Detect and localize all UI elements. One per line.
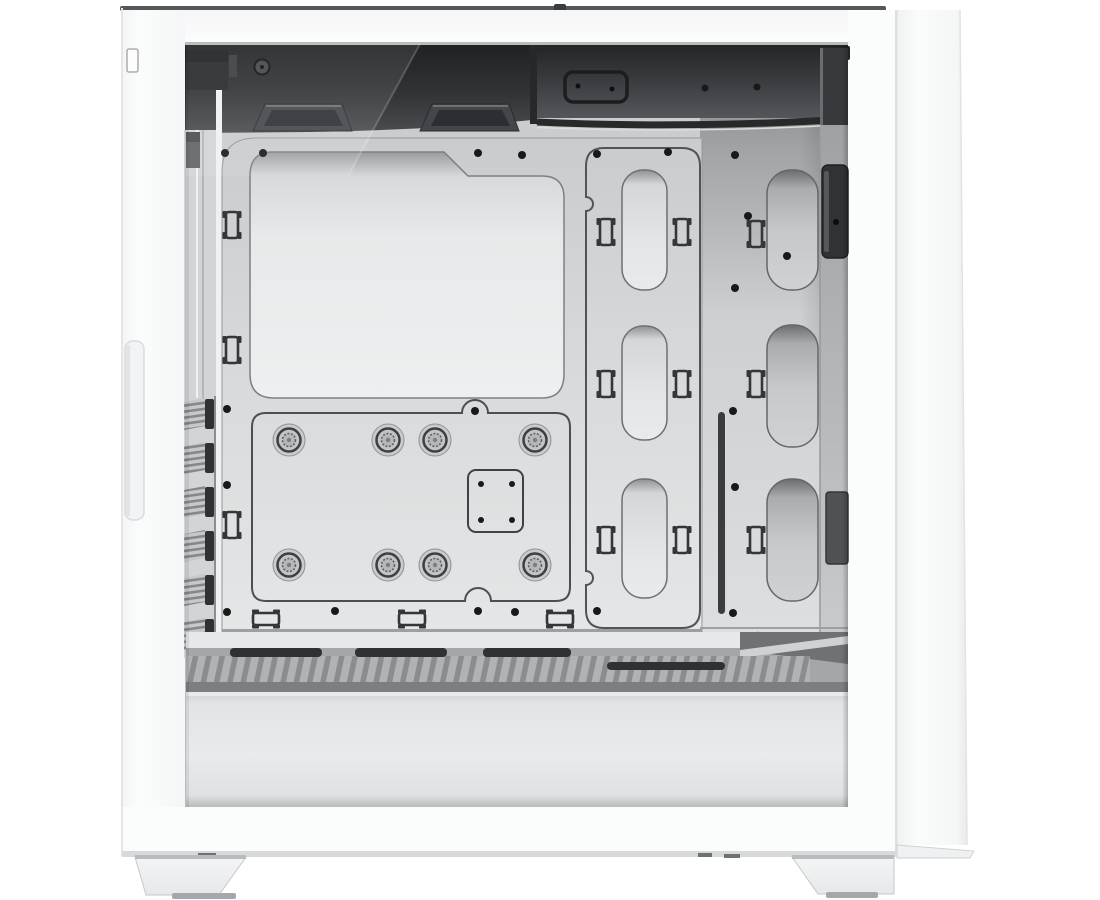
shroud-shadow-band <box>186 682 848 692</box>
fan-mount-pad <box>420 104 519 131</box>
rear-cable-cutout-middle <box>767 325 818 447</box>
photo-stage <box>0 0 1100 900</box>
rear-seam <box>895 10 898 857</box>
rear-cable-cutout-bottom <box>767 479 818 601</box>
motherboard-standoff <box>519 424 551 456</box>
motherboard-standoff <box>419 549 451 581</box>
top-frame <box>122 10 897 44</box>
psu-shroud <box>186 629 848 807</box>
motherboard-standoff <box>419 424 451 456</box>
rear-frame-column <box>848 10 897 856</box>
rear-cable-cutout-top <box>767 170 818 290</box>
vent-divider-line <box>214 396 216 658</box>
motherboard-standoff <box>273 549 305 581</box>
front-grip-shadow <box>126 345 130 516</box>
motherboard-tray <box>222 138 702 632</box>
shroud-front-panel <box>186 692 848 807</box>
top-rail-step <box>530 44 537 124</box>
tray-fold-line <box>222 629 702 632</box>
bottom-frame <box>122 807 897 856</box>
rail-clip-mark <box>724 854 740 858</box>
motherboard-standoff <box>372 424 404 456</box>
motherboard-standoff <box>273 424 305 456</box>
front-edge-line <box>121 8 123 856</box>
top-shadow-right <box>537 44 848 118</box>
cable-cutout-bottom <box>622 479 667 598</box>
foot-front-pad <box>172 893 236 899</box>
rear-panel-face <box>897 10 967 845</box>
panel-latch-tab <box>127 49 138 72</box>
rail-clip-mark <box>698 853 712 857</box>
foot-front-top <box>135 855 246 859</box>
gpu-antisag-slot <box>718 412 727 614</box>
case-interior <box>184 42 850 807</box>
cable-cutout-top <box>622 170 667 290</box>
foot-rear-top <box>792 855 894 859</box>
interior-right-shadow <box>842 44 848 807</box>
motherboard-standoff <box>519 549 551 581</box>
cable-cutout-middle <box>622 326 667 440</box>
pc-case-photo <box>0 0 1100 900</box>
foot-rear-pad <box>826 892 878 898</box>
shroud-front-highlight <box>186 692 848 696</box>
shroud-bottom-shadow <box>186 795 848 807</box>
motherboard-standoff <box>372 549 404 581</box>
rear-bracket-upper-edge <box>820 48 823 125</box>
cpu-cooler-cutout <box>250 152 564 398</box>
